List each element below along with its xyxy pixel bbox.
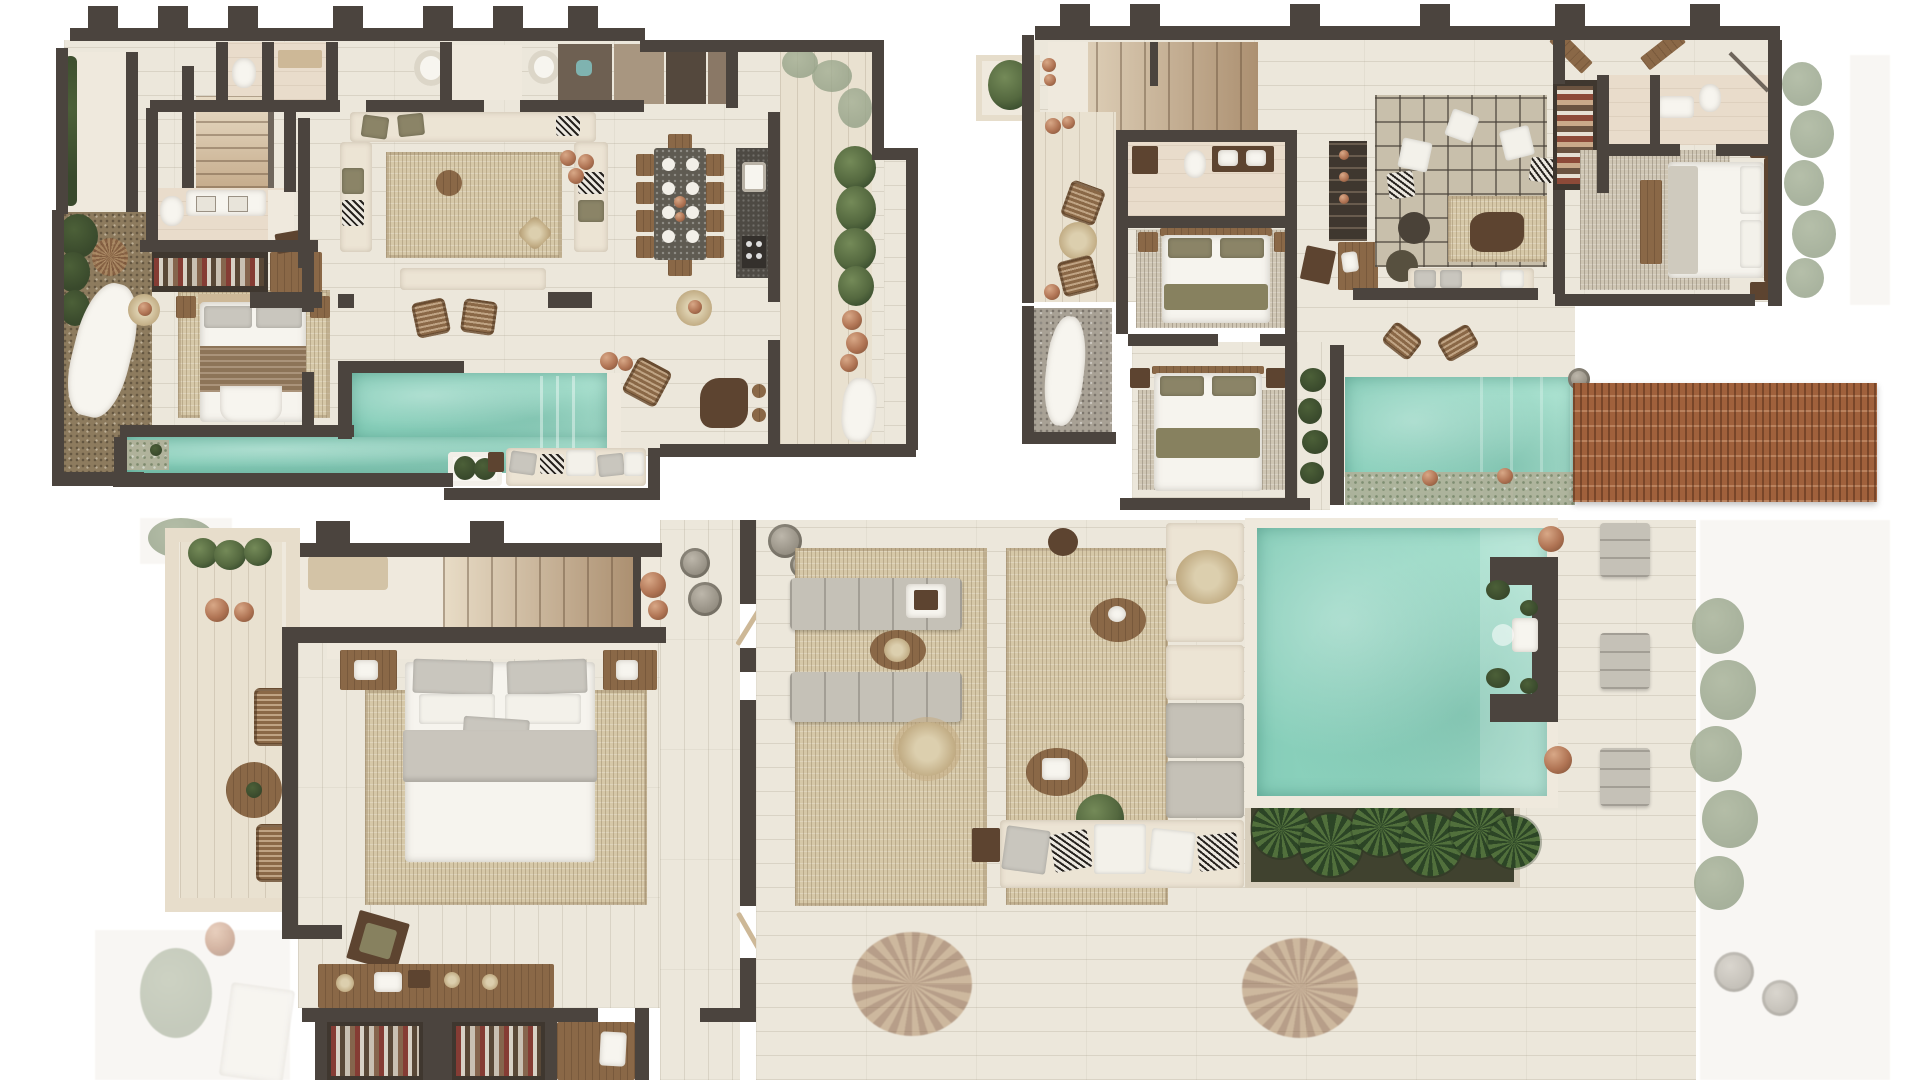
p3-wall-left: [282, 627, 298, 877]
p3-closet-b-clothes: [456, 1026, 541, 1076]
p3-wall-bedroom-top: [298, 627, 666, 643]
p3-stairs-rail: [633, 557, 641, 627]
p3-sofa-pillow-2: [1049, 829, 1093, 873]
p3-balcony-plant-3: [244, 538, 272, 566]
p3-faded-pot-1: [1714, 952, 1754, 992]
p3-faded-bl-slab: [219, 982, 295, 1080]
p3-balcony-pot-2: [234, 602, 254, 622]
p3-table-charger: [884, 638, 910, 662]
p3-wall-closet-left: [315, 1022, 327, 1080]
p3-master-bed: [403, 652, 597, 864]
p3-faded-pot-2: [1762, 980, 1798, 1016]
p3-sofa-side-table: [972, 828, 1000, 862]
p3-sofa-pillow-5: [1196, 832, 1240, 872]
p3-stairs: [443, 557, 633, 627]
p3-fountain-green-1: [1486, 580, 1510, 600]
p3-wall-shelf-right: [635, 1008, 649, 1080]
p3-wall-console: [302, 1008, 598, 1022]
p3-nightstand-deco-2: [616, 660, 638, 680]
p3-corridor-pot-1: [640, 572, 666, 598]
p3-wall-corridor-1: [740, 520, 756, 604]
p3-corridor-urn-1: [680, 548, 710, 578]
p3-fountain-basin: [1512, 618, 1538, 652]
p3-lounger-3: [1600, 748, 1650, 806]
p3-wall-corridor-4: [740, 958, 756, 1014]
p3-sofa-pillow-1: [1001, 825, 1051, 875]
p3-console-box: [408, 970, 430, 988]
p3-ghost-wicker-2: [1242, 938, 1358, 1038]
p3-stair-cushion: [308, 556, 388, 590]
p3-stub-1: [316, 521, 350, 543]
p3-console-bowl-2: [444, 972, 460, 988]
p3-console-book: [374, 972, 402, 992]
p3-fountain-green-3: [1520, 600, 1538, 616]
p3-wall-closet-div: [423, 1022, 452, 1080]
p3-console-bowl-3: [482, 974, 498, 990]
p3-stump-tray: [1042, 758, 1070, 780]
p3-bench-mat: [1176, 550, 1238, 604]
p3-nightstand-deco-1: [354, 660, 378, 680]
p3-lounger-2: [1600, 633, 1650, 689]
p3-faded-plant-2: [1700, 660, 1756, 720]
p3-corridor-urn-2: [688, 582, 722, 616]
plan-roof-terrace: [0, 0, 1920, 1080]
p3-corridor-pot-2: [648, 600, 668, 620]
p3-dark-bowl: [1048, 528, 1078, 556]
p3-closet-shelf-card: [599, 1031, 627, 1066]
p3-wall-corridor-corner: [700, 1008, 756, 1022]
p3-wall-left-lower: [282, 877, 298, 925]
p3-bed-pillow-2: [506, 659, 587, 696]
p3-fountain-green-2: [1486, 668, 1510, 688]
p3-pool-pot-2: [1544, 746, 1572, 774]
p3-pool-pot-1: [1538, 526, 1564, 552]
p3-faded-plant-1: [1692, 598, 1744, 654]
p3-faded-bl-plant: [140, 948, 212, 1038]
p3-faded-plant-5: [1694, 856, 1744, 910]
p3-balcony-table-plant: [246, 782, 262, 798]
p3-fringe-pouf: [898, 722, 956, 776]
p3-daybed-tray-inner: [914, 590, 938, 610]
p3-sofa-pillow-3: [1094, 824, 1146, 874]
floor-plans-canvas: [0, 0, 1920, 1080]
p3-wall-closet-right: [545, 1022, 557, 1080]
p3-bench-cushion-3: [1166, 645, 1244, 700]
p3-bench-cushion-4: [1166, 703, 1244, 758]
p3-sofa-pillow-4: [1148, 828, 1196, 874]
p3-palm-6: [1488, 816, 1540, 868]
p3-bench-cushion-5: [1166, 761, 1244, 818]
p3-wall-corridor-3: [740, 700, 756, 906]
p3-balcony-plant-2: [214, 540, 246, 570]
p3-daybed-2: [790, 672, 962, 722]
p3-stump-cup: [1108, 606, 1126, 622]
p3-ghost-wicker-1: [852, 932, 972, 1036]
p3-fountain-green-4: [1520, 678, 1538, 694]
p3-wall-corridor-2: [740, 648, 756, 672]
p3-faded-plant-3: [1690, 726, 1742, 782]
p3-faded-bl-pot: [205, 922, 235, 956]
p3-console-bowl-1: [336, 974, 354, 992]
p3-lounger-1: [1600, 523, 1650, 577]
p3-stub-2: [470, 521, 504, 543]
p3-faded-plant-4: [1702, 790, 1758, 848]
p3-wall-top: [300, 543, 662, 557]
p3-closet-a-clothes: [331, 1026, 419, 1076]
p3-bed-pillow-1: [412, 659, 493, 696]
p3-bed-duvet: [403, 730, 597, 782]
p3-fountain-splash: [1492, 624, 1514, 646]
p3-balcony-pot-1: [205, 598, 229, 622]
p3-wall-left-corner: [282, 925, 342, 939]
